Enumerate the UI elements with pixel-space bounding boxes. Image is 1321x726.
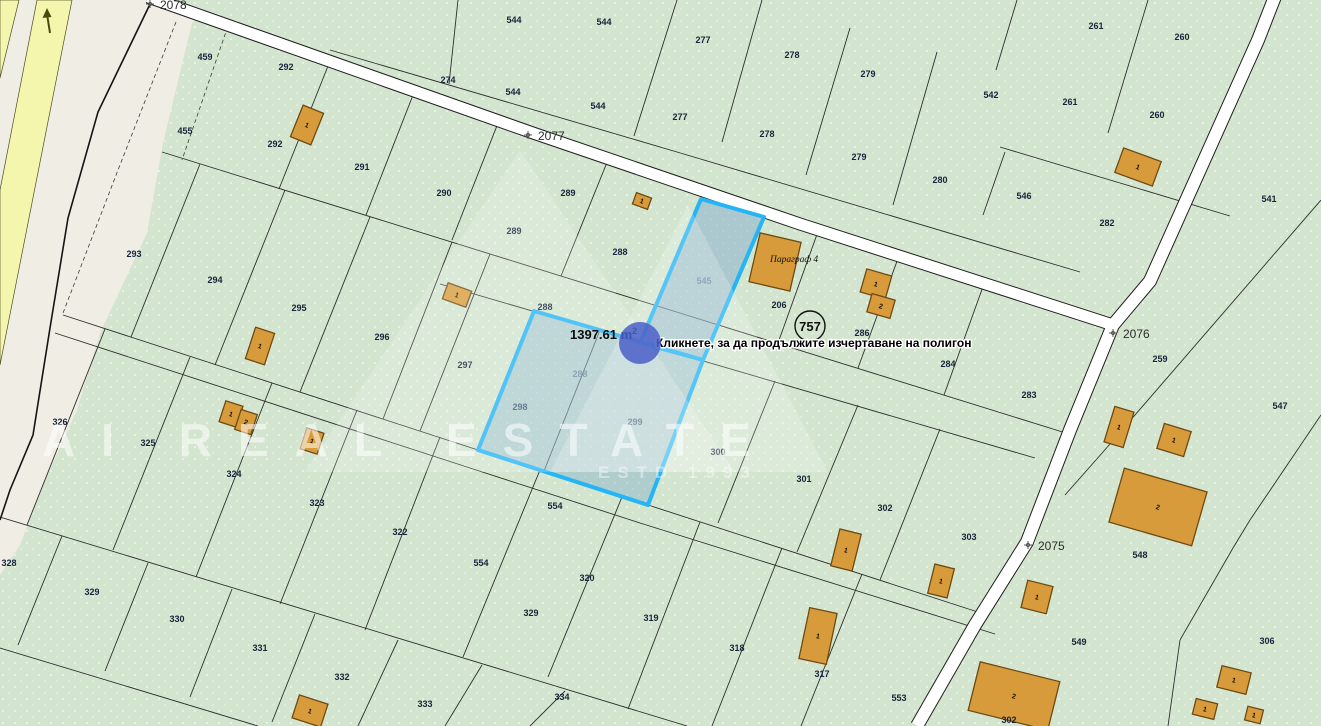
- parcel-label: 301: [796, 474, 811, 484]
- drawing-tooltip: Кликнете, за да продължите изчертаване н…: [656, 336, 971, 350]
- parcel-label: 541: [1261, 194, 1276, 204]
- parcel-label: 290: [436, 188, 451, 198]
- parcel-label: 259: [1152, 354, 1167, 364]
- parcel-label: 278: [759, 129, 774, 139]
- parcel-label: 331: [252, 643, 267, 653]
- parcel-label: 291: [354, 162, 369, 172]
- parcel-label: 277: [695, 35, 710, 45]
- watermark-text: AI REAL ESTATE: [42, 414, 777, 466]
- parcel-label: 302: [877, 503, 892, 513]
- parcel-label: 294: [207, 275, 222, 285]
- parcel-label: 328: [1, 558, 16, 568]
- parcel-label: 329: [523, 608, 538, 618]
- parcel-label: 292: [278, 62, 293, 72]
- road-label-2078: 2078: [160, 0, 187, 12]
- parcel-label: 546: [1016, 191, 1031, 201]
- drawing-cursor-point[interactable]: [619, 322, 661, 364]
- parcel-label: 292: [267, 139, 282, 149]
- watermark-subtext: ESTD 1993: [598, 463, 758, 482]
- parcel-label: 542: [983, 90, 998, 100]
- parcel-label: 547: [1272, 401, 1287, 411]
- road-label-2075: 2075: [1038, 539, 1065, 553]
- building-caption: Параграф 4: [769, 254, 818, 265]
- parcel-label: 295: [291, 303, 306, 313]
- parcel-label: 549: [1071, 637, 1086, 647]
- parcel-label: 544: [596, 17, 611, 27]
- parcel-label: 554: [473, 558, 488, 568]
- map-stage: 1112111211112111111112 45945529229229354…: [0, 0, 1321, 726]
- svg-text:757: 757: [799, 319, 821, 334]
- parcel-label: 283: [1021, 390, 1036, 400]
- parcel-label: 544: [590, 101, 605, 111]
- parcel-label: 317: [814, 669, 829, 679]
- parcel-label: 282: [1099, 218, 1114, 228]
- parcel-label: 554: [547, 501, 562, 511]
- parcel-label: 293: [126, 249, 141, 259]
- parcel-label: 333: [417, 699, 432, 709]
- parcel-label: 322: [392, 527, 407, 537]
- parcel-label: 261: [1088, 21, 1103, 31]
- parcel-label: 329: [84, 587, 99, 597]
- parcel-label: 320: [579, 573, 594, 583]
- parcel-label: 548: [1132, 550, 1147, 560]
- map-canvas[interactable]: 1112111211112111111112 45945529229229354…: [0, 0, 1321, 726]
- parcel-label: 284: [940, 359, 955, 369]
- parcel-label: 330: [169, 614, 184, 624]
- parcel-label: 319: [643, 613, 658, 623]
- parcel-label: 288: [612, 247, 627, 257]
- parcel-label: 306: [1259, 636, 1274, 646]
- parcel-label: 296: [374, 332, 389, 342]
- parcel-label: 455: [177, 126, 192, 136]
- parcel-label: 279: [860, 69, 875, 79]
- road-label-2076: 2076: [1123, 327, 1150, 341]
- road-label-2077: 2077: [538, 129, 565, 143]
- parcel-label: 279: [851, 152, 866, 162]
- parcel-label: 289: [560, 188, 575, 198]
- parcel-label: 332: [334, 672, 349, 682]
- parcel-label: 544: [505, 87, 520, 97]
- parcel-label: 261: [1062, 97, 1077, 107]
- parcel-label: 206: [771, 300, 786, 310]
- parcel-label: 260: [1149, 110, 1164, 120]
- parcel-label: 303: [961, 532, 976, 542]
- parcel-label: 274: [440, 75, 455, 85]
- parcel-label: 278: [784, 50, 799, 60]
- parcel-label: 459: [197, 52, 212, 62]
- building: 1: [1245, 706, 1264, 723]
- parcel-label: 318: [729, 643, 744, 653]
- parcel-label: 553: [891, 693, 906, 703]
- parcel-label: 260: [1174, 32, 1189, 42]
- parcel-label: 323: [309, 498, 324, 508]
- parcel-label: 277: [672, 112, 687, 122]
- parcel-label: 544: [506, 15, 521, 25]
- parcel-label: 280: [932, 175, 947, 185]
- parcel-label: 324: [226, 469, 241, 479]
- parcel-label: 302: [1001, 715, 1016, 725]
- parcel-label: 334: [554, 692, 569, 702]
